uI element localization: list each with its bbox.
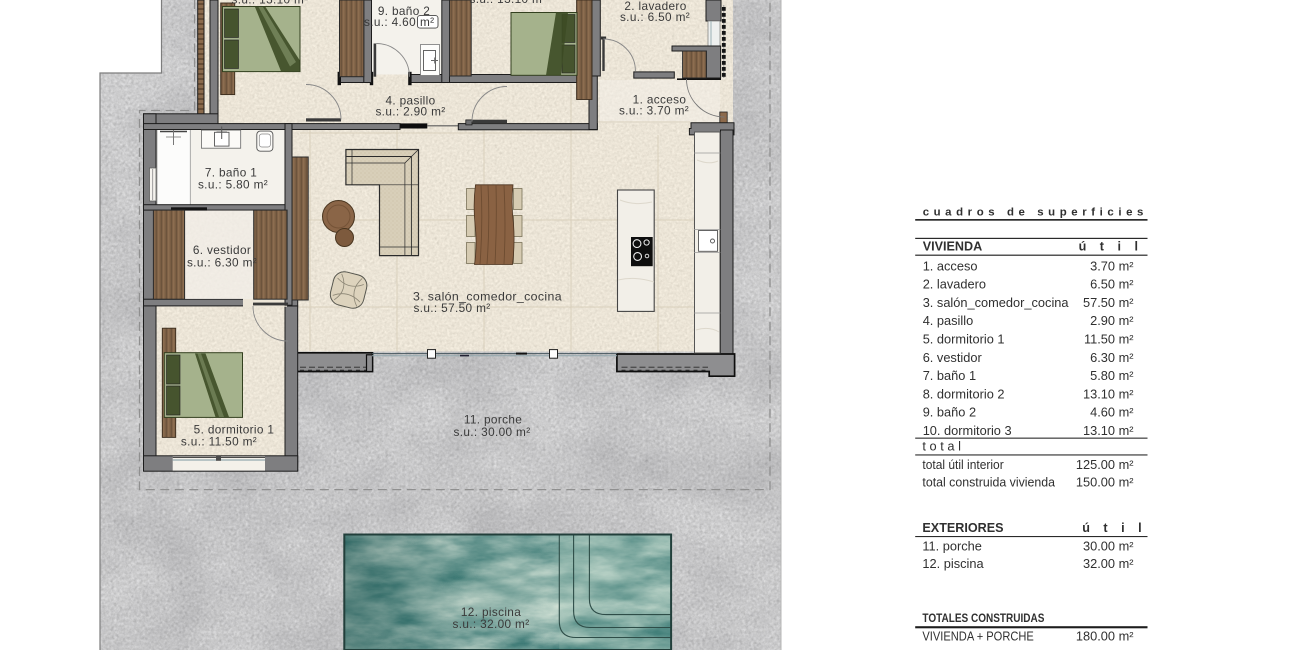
svg-text:6.50 m²: 6.50 m² — [1090, 277, 1134, 292]
svg-text:4. pasillo: 4. pasillo — [923, 313, 974, 328]
svg-text:VIVIENDA + PORCHE: VIVIENDA + PORCHE — [922, 629, 1033, 644]
svg-text:2. lavadero: 2. lavadero — [923, 277, 986, 292]
svg-text:6.30 m²: 6.30 m² — [1090, 350, 1134, 365]
svg-text:TOTALES CONSTRUIDAS: TOTALES CONSTRUIDAS — [922, 611, 1044, 625]
svg-text:s.u.: 4.60: s.u.: 4.60 — [364, 15, 416, 29]
svg-text:m²: m² — [420, 15, 434, 29]
svg-text:s.u.: 2.90 m²: s.u.: 2.90 m² — [375, 105, 445, 119]
svg-text:1. acceso: 1. acceso — [923, 258, 978, 273]
svg-text:11.50 m²: 11.50 m² — [1084, 332, 1134, 347]
svg-text:10. dormitorio 3: 10. dormitorio 3 — [923, 423, 1012, 438]
svg-text:s.u.: 6.50 m²: s.u.: 6.50 m² — [620, 10, 690, 24]
svg-text:total construida vivienda: total construida vivienda — [922, 475, 1055, 490]
svg-text:5.80 m²: 5.80 m² — [1090, 368, 1134, 383]
svg-text:2.90 m²: 2.90 m² — [1090, 313, 1134, 328]
svg-text:3.70 m²: 3.70 m² — [1090, 258, 1134, 273]
svg-text:s.u.: 57.50 m²: s.u.: 57.50 m² — [414, 301, 491, 315]
svg-text:s.u.: 13.10 m²: s.u.: 13.10 m² — [469, 0, 546, 6]
svg-text:57.50 m²: 57.50 m² — [1083, 295, 1134, 310]
svg-text:total útil interior: total útil interior — [922, 457, 1004, 472]
svg-text:VIVIENDA: VIVIENDA — [923, 240, 982, 254]
svg-text:s.u.: 30.00 m²: s.u.: 30.00 m² — [453, 425, 530, 439]
svg-text:total: total — [922, 439, 964, 454]
svg-text:ú t i l: ú t i l — [1082, 521, 1146, 535]
svg-text:13.10 m²: 13.10 m² — [1083, 423, 1134, 438]
svg-text:s.u.: 32.00 m²: s.u.: 32.00 m² — [452, 617, 529, 631]
svg-text:32.00 m²: 32.00 m² — [1083, 556, 1134, 571]
svg-text:s.u.: 13.10 m²: s.u.: 13.10 m² — [231, 0, 308, 7]
svg-text:s.u.: 5.80 m²: s.u.: 5.80 m² — [198, 178, 268, 192]
svg-text:180.00 m²: 180.00 m² — [1076, 629, 1134, 644]
svg-text:11. porche: 11. porche — [922, 538, 982, 553]
svg-text:cuadros de superficies: cuadros de superficies — [923, 207, 1148, 219]
svg-text:13.10 m²: 13.10 m² — [1083, 386, 1134, 401]
svg-text:12. piscina: 12. piscina — [922, 556, 984, 571]
svg-text:3. salón_comedor_cocina: 3. salón_comedor_cocina — [923, 295, 1070, 310]
svg-text:150.00 m²: 150.00 m² — [1076, 475, 1134, 490]
svg-text:30.00 m²: 30.00 m² — [1083, 538, 1134, 553]
svg-text:6. vestidor: 6. vestidor — [923, 350, 983, 365]
svg-text:125.00 m²: 125.00 m² — [1076, 457, 1134, 472]
svg-text:8. dormitorio 2: 8. dormitorio 2 — [923, 386, 1005, 401]
svg-text:4.60 m²: 4.60 m² — [1090, 405, 1134, 420]
svg-text:7. baño 1: 7. baño 1 — [923, 368, 976, 383]
svg-text:s.u.: 11.50 m²: s.u.: 11.50 m² — [181, 435, 257, 449]
svg-text:s.u.: 3.70 m²: s.u.: 3.70 m² — [619, 103, 689, 117]
svg-text:9. baño 2: 9. baño 2 — [923, 405, 976, 420]
svg-text:5. dormitorio 1: 5. dormitorio 1 — [923, 332, 1005, 347]
svg-text:ú t i l: ú t i l — [1079, 240, 1143, 254]
svg-text:EXTERIORES: EXTERIORES — [922, 521, 1003, 535]
svg-text:s.u.: 6.30 m²: s.u.: 6.30 m² — [187, 256, 257, 270]
